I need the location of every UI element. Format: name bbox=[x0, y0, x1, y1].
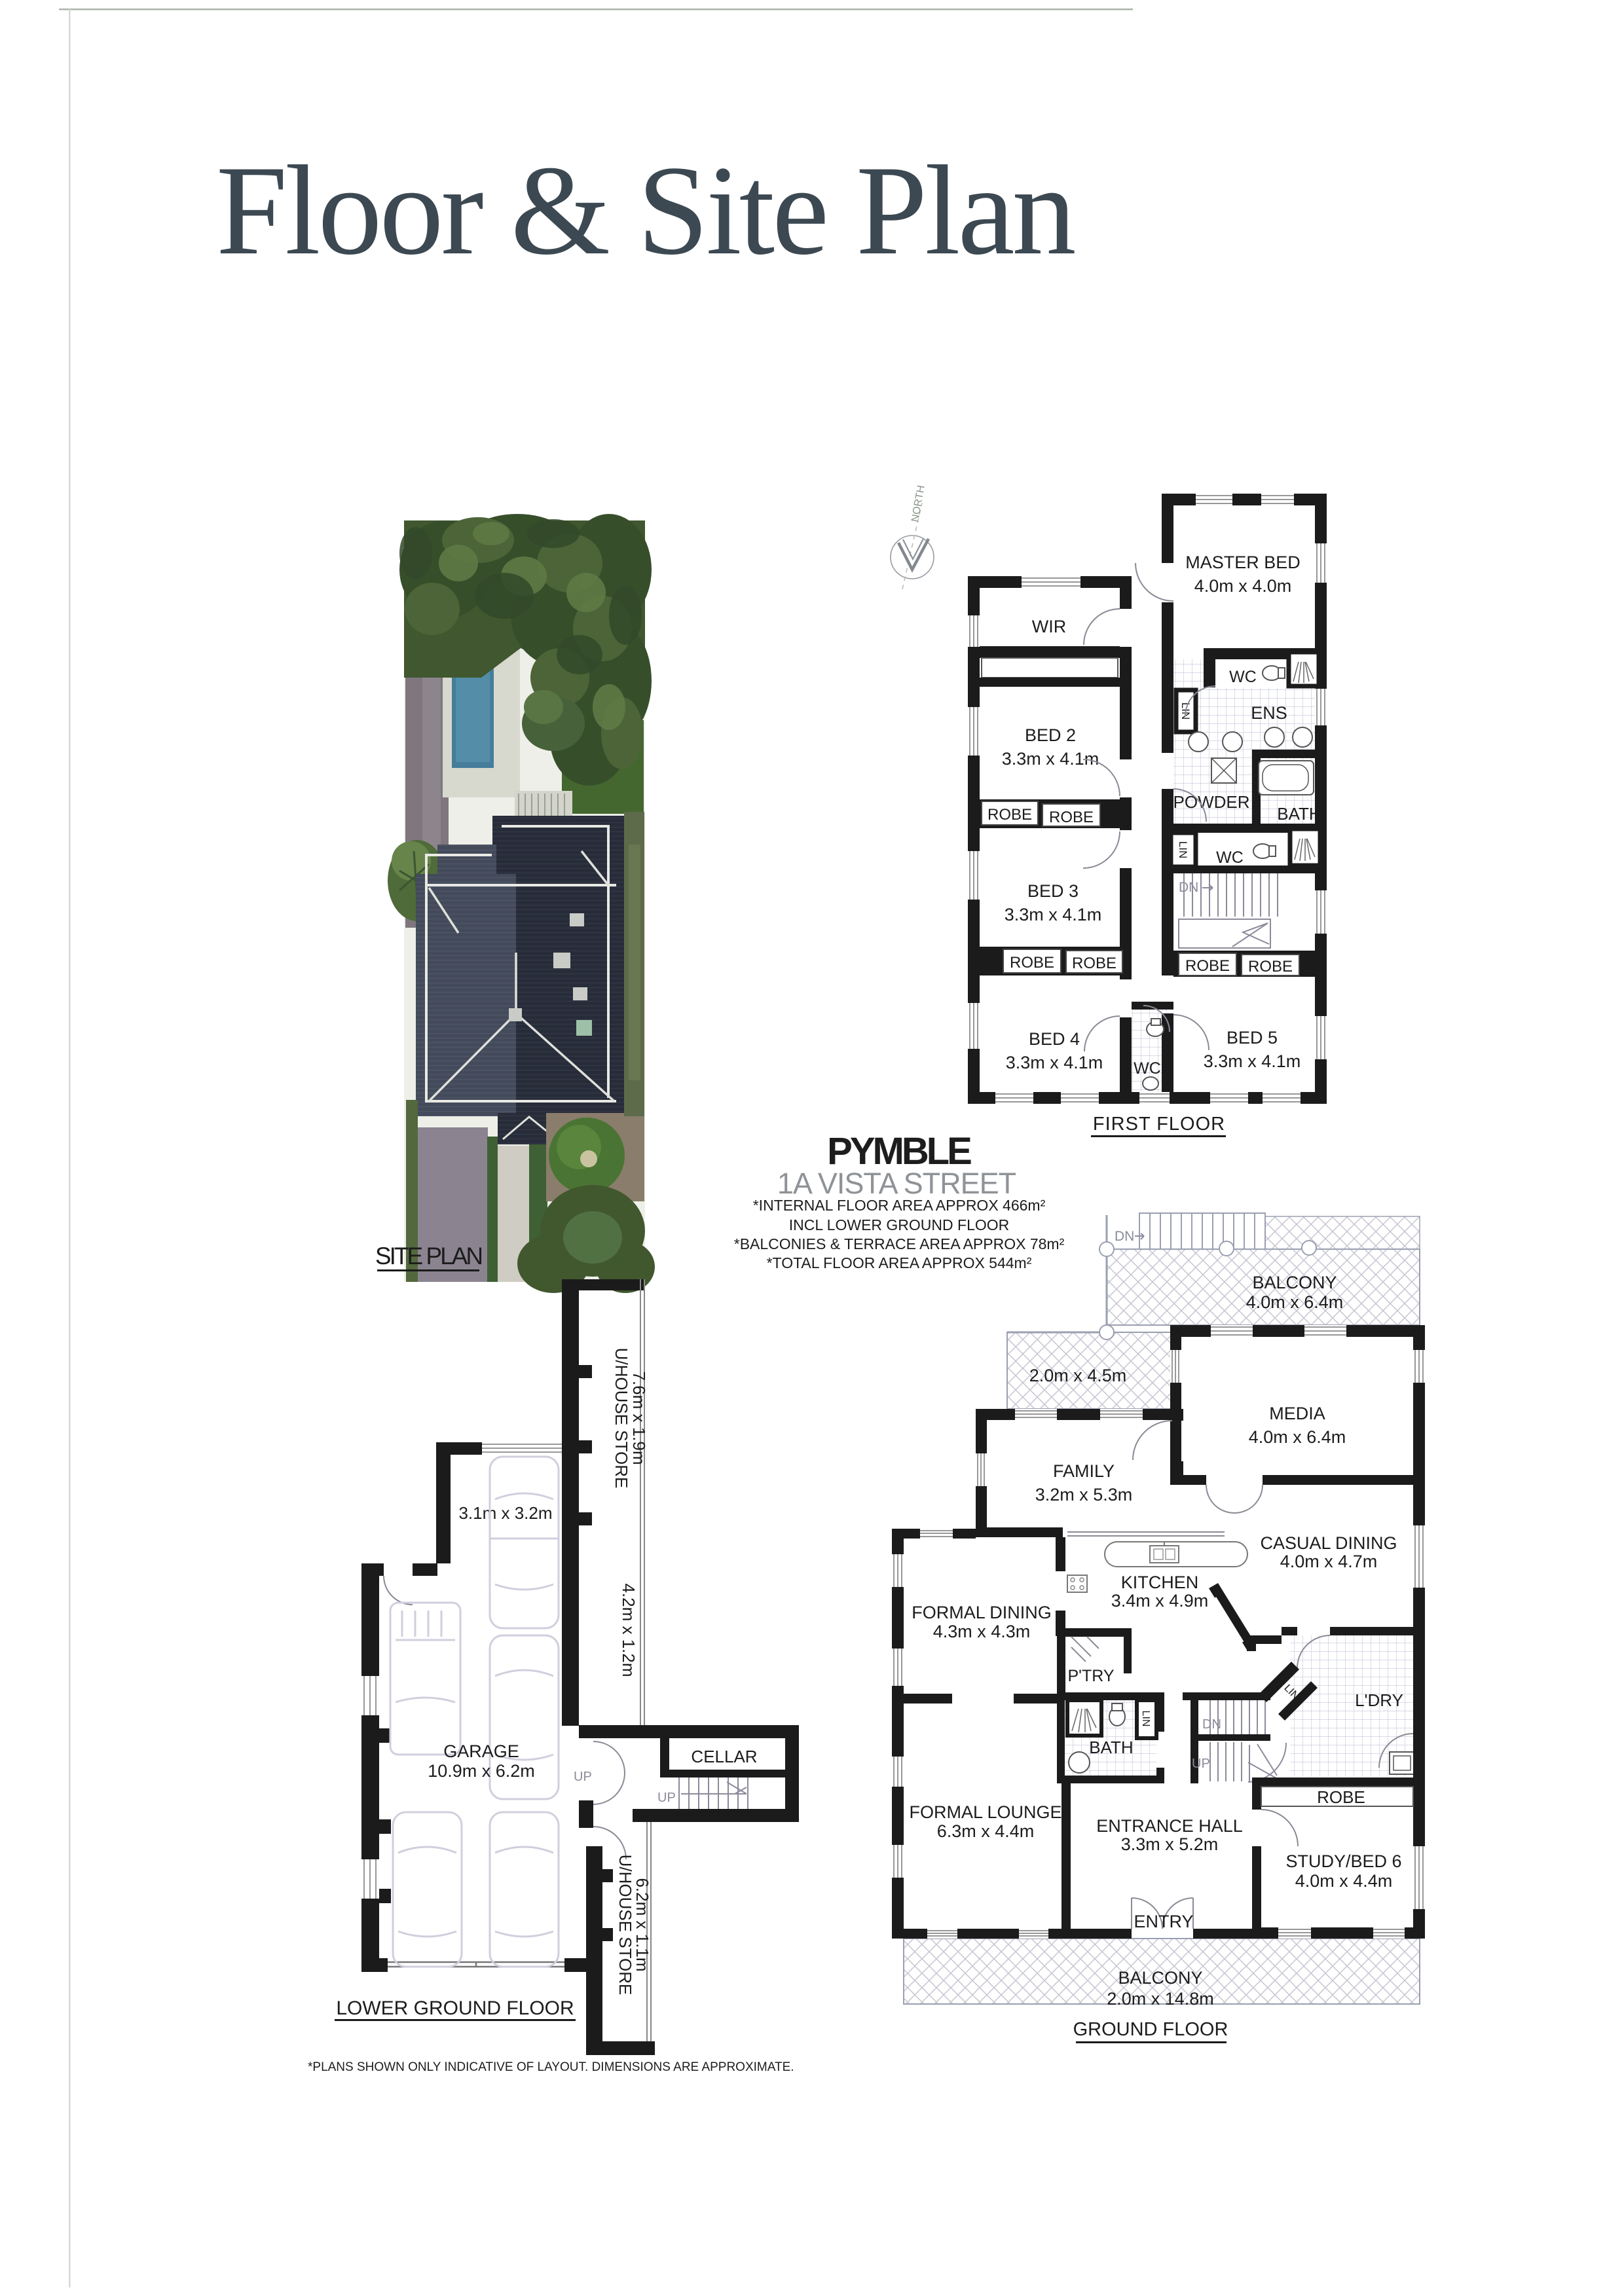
svg-text:3.4m x 4.9m: 3.4m x 4.9m bbox=[1111, 1591, 1209, 1611]
svg-text:INCL LOWER GROUND FLOOR: INCL LOWER GROUND FLOOR bbox=[789, 1216, 1010, 1233]
svg-text:ENTRY: ENTRY bbox=[1134, 1912, 1193, 1931]
svg-text:ROBE: ROBE bbox=[1185, 957, 1230, 975]
svg-text:POWDER: POWDER bbox=[1173, 792, 1250, 812]
svg-text:FIRST FLOOR: FIRST FLOOR bbox=[1093, 1114, 1225, 1135]
svg-text:UP: UP bbox=[1192, 1757, 1210, 1771]
svg-text:ROBE: ROBE bbox=[987, 806, 1032, 824]
svg-text:3.3m x 4.1m: 3.3m x 4.1m bbox=[1204, 1051, 1301, 1071]
svg-text:*TOTAL FLOOR AREA APPROX 544m²: *TOTAL FLOOR AREA APPROX 544m² bbox=[767, 1254, 1032, 1271]
svg-text:3.3m x 5.2m: 3.3m x 5.2m bbox=[1121, 1834, 1219, 1854]
svg-text:ENS: ENS bbox=[1251, 703, 1287, 723]
svg-text:6.2m x 1.1m: 6.2m x 1.1m bbox=[633, 1878, 652, 1971]
svg-text:4.0m x 4.0m: 4.0m x 4.0m bbox=[1194, 576, 1292, 596]
svg-text:CELLAR: CELLAR bbox=[691, 1747, 757, 1766]
svg-text:NORTH: NORTH bbox=[910, 484, 927, 523]
svg-text:3.3m x 4.1m: 3.3m x 4.1m bbox=[1002, 749, 1099, 769]
svg-text:UP: UP bbox=[574, 1770, 592, 1784]
svg-text:BATH: BATH bbox=[1089, 1738, 1133, 1757]
svg-text:6.3m x 4.4m: 6.3m x 4.4m bbox=[937, 1821, 1035, 1841]
svg-text:FORMAL LOUNGE: FORMAL LOUNGE bbox=[909, 1802, 1061, 1822]
svg-text:FAMILY: FAMILY bbox=[1053, 1461, 1115, 1481]
svg-text:ROBE: ROBE bbox=[1010, 954, 1054, 972]
svg-text:SITE PLAN: SITE PLAN bbox=[375, 1243, 481, 1269]
svg-text:LIN: LIN bbox=[1140, 1711, 1151, 1727]
svg-text:CASUAL DINING: CASUAL DINING bbox=[1260, 1533, 1397, 1553]
svg-text:7.6m x 1.9m: 7.6m x 1.9m bbox=[629, 1371, 649, 1465]
svg-text:WIR: WIR bbox=[1032, 617, 1066, 636]
svg-text:BED 4: BED 4 bbox=[1029, 1029, 1080, 1049]
svg-text:BATH: BATH bbox=[1277, 804, 1321, 824]
svg-text:4.0m x 6.4m: 4.0m x 6.4m bbox=[1249, 1427, 1346, 1447]
svg-text:BALCONY: BALCONY bbox=[1252, 1273, 1337, 1292]
svg-text:U/HOUSE STORE: U/HOUSE STORE bbox=[616, 1855, 635, 1995]
svg-text:ENTRANCE HALL: ENTRANCE HALL bbox=[1096, 1816, 1243, 1836]
svg-text:P'TRY: P'TRY bbox=[1068, 1667, 1115, 1685]
svg-text:BALCONY: BALCONY bbox=[1118, 1968, 1202, 1988]
svg-text:BED 3: BED 3 bbox=[1027, 881, 1079, 901]
svg-text:4.0m x 4.4m: 4.0m x 4.4m bbox=[1295, 1871, 1393, 1891]
svg-text:ROBE: ROBE bbox=[1317, 1787, 1365, 1807]
svg-text:MASTER BED: MASTER BED bbox=[1185, 553, 1301, 572]
svg-text:BED 2: BED 2 bbox=[1025, 725, 1076, 745]
svg-text:DN: DN bbox=[1179, 880, 1198, 895]
svg-text:ROBE: ROBE bbox=[1072, 955, 1116, 972]
svg-text:3.2m x 5.3m: 3.2m x 5.3m bbox=[1035, 1485, 1133, 1504]
svg-text:4.0m x 4.7m: 4.0m x 4.7m bbox=[1280, 1552, 1378, 1571]
svg-text:WC: WC bbox=[1216, 848, 1244, 867]
svg-text:*PLANS SHOWN ONLY INDICATIVE O: *PLANS SHOWN ONLY INDICATIVE OF LAYOUT. … bbox=[308, 2060, 794, 2074]
svg-text:DN: DN bbox=[1202, 1717, 1221, 1732]
svg-text:LIN: LIN bbox=[1177, 841, 1189, 858]
svg-text:GARAGE: GARAGE bbox=[443, 1741, 519, 1761]
svg-text:Floor & Site Plan: Floor & Site Plan bbox=[216, 139, 1075, 282]
svg-text:3.3m x 4.1m: 3.3m x 4.1m bbox=[1006, 1053, 1103, 1072]
svg-text:BED 5: BED 5 bbox=[1227, 1028, 1278, 1048]
svg-text:3.3m x 4.1m: 3.3m x 4.1m bbox=[1005, 905, 1102, 924]
svg-text:L'DRY: L'DRY bbox=[1355, 1690, 1403, 1710]
svg-text:ROBE: ROBE bbox=[1049, 809, 1094, 826]
svg-text:4.0m x 6.4m: 4.0m x 6.4m bbox=[1246, 1292, 1344, 1312]
svg-text:4.2m x 1.2m: 4.2m x 1.2m bbox=[619, 1583, 638, 1677]
svg-text:*INTERNAL FLOOR AREA APPROX 46: *INTERNAL FLOOR AREA APPROX 466m² bbox=[753, 1197, 1046, 1214]
svg-text:ROBE: ROBE bbox=[1248, 958, 1293, 975]
svg-text:U/HOUSE STORE: U/HOUSE STORE bbox=[612, 1348, 631, 1489]
svg-text:MEDIA: MEDIA bbox=[1269, 1404, 1325, 1423]
svg-text:GROUND FLOOR: GROUND FLOOR bbox=[1073, 2019, 1228, 2040]
svg-text:LOWER GROUND FLOOR: LOWER GROUND FLOOR bbox=[336, 1997, 574, 2019]
svg-text:2.0m x 14.8m: 2.0m x 14.8m bbox=[1107, 1989, 1214, 2009]
svg-text:4.3m x 4.3m: 4.3m x 4.3m bbox=[933, 1622, 1031, 1641]
svg-text:FORMAL DINING: FORMAL DINING bbox=[912, 1603, 1052, 1622]
svg-text:STUDY/BED 6: STUDY/BED 6 bbox=[1285, 1851, 1401, 1871]
svg-text:10.9m x 6.2m: 10.9m x 6.2m bbox=[428, 1761, 535, 1781]
svg-text:DN: DN bbox=[1115, 1229, 1134, 1244]
svg-text:3.1m x 3.2m: 3.1m x 3.2m bbox=[458, 1503, 552, 1523]
svg-text:WC: WC bbox=[1134, 1059, 1161, 1078]
svg-text:KITCHEN: KITCHEN bbox=[1121, 1573, 1199, 1592]
svg-text:*BALCONIES & TERRACE AREA APPR: *BALCONIES & TERRACE AREA APPROX 78m² bbox=[734, 1235, 1065, 1252]
svg-text:WC: WC bbox=[1229, 668, 1257, 686]
svg-text:2.0m x 4.5m: 2.0m x 4.5m bbox=[1029, 1366, 1127, 1385]
svg-text:UP: UP bbox=[657, 1791, 676, 1805]
svg-text:1A VISTA STREET: 1A VISTA STREET bbox=[777, 1167, 1016, 1200]
